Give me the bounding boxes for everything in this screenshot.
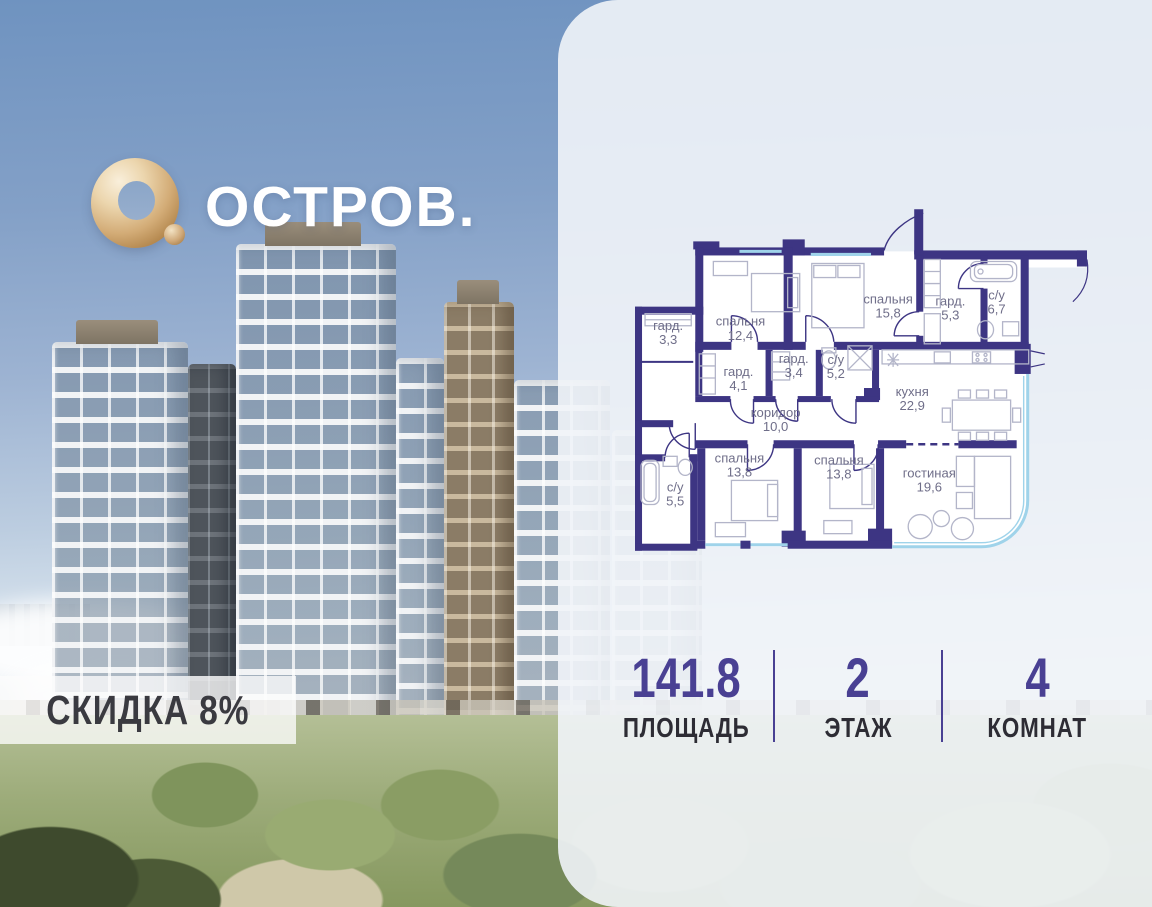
stat-area: 141.8 ПЛОЩАДЬ xyxy=(600,650,773,742)
room-area: 5,3 xyxy=(941,308,959,323)
room-area: 22,9 xyxy=(899,398,924,413)
room-area: 5,5 xyxy=(666,494,684,509)
stat-floor: 2 ЭТАЖ xyxy=(775,650,941,742)
floorplan: гард. 3,3 спальня 12,4 спальня 15,8 гард… xyxy=(635,203,1097,563)
room-label: гостиная xyxy=(903,465,956,480)
room-area: 4,1 xyxy=(729,378,747,393)
room-area: 12,4 xyxy=(728,328,753,343)
stat-rooms: 4 КОМНАТ xyxy=(943,650,1132,742)
room-area: 6,7 xyxy=(987,302,1005,317)
room-label: с/у xyxy=(988,288,1005,303)
discount-badge: СКИДКА 8% xyxy=(0,676,296,744)
stat-floor-value: 2 xyxy=(846,650,870,706)
promo-card: ОСТРОВ. СКИДКА 8% xyxy=(0,0,1152,907)
room-area: 13,8 xyxy=(826,466,851,481)
brand-name: ОСТРОВ. xyxy=(205,179,477,236)
discount-label: СКИДКА 8% xyxy=(46,687,249,734)
room-label: спальня xyxy=(863,292,913,307)
room-area: 19,6 xyxy=(917,479,942,494)
room-label: с/у xyxy=(667,479,684,494)
stat-floor-label: ЭТАЖ xyxy=(824,714,892,742)
room-label: спальня xyxy=(814,452,864,467)
room-area: 10,0 xyxy=(763,419,788,434)
room-label: коридор xyxy=(751,405,801,420)
room-label: гард. xyxy=(723,364,753,379)
room-label: гард. xyxy=(779,351,809,366)
room-area: 5,2 xyxy=(827,366,845,381)
room-label: гард. xyxy=(653,318,683,333)
room-label: кухня xyxy=(896,384,929,399)
room-area: 3,4 xyxy=(785,365,803,380)
room-label: гард. xyxy=(935,294,965,309)
brand-dot-icon xyxy=(164,224,185,245)
room-label: с/у xyxy=(828,352,845,367)
apartment-stats: 141.8 ПЛОЩАДЬ 2 ЭТАЖ 4 КОМНАТ xyxy=(600,642,1132,750)
room-label: спальня xyxy=(716,314,766,329)
stat-rooms-value: 4 xyxy=(1025,650,1049,706)
room-area: 3,3 xyxy=(659,332,677,347)
room-area: 15,8 xyxy=(875,306,900,321)
stat-area-value: 141.8 xyxy=(632,650,741,706)
room-area: 13,8 xyxy=(727,464,752,479)
stat-area-label: ПЛОЩАДЬ xyxy=(623,714,750,742)
room-label: спальня xyxy=(715,450,765,465)
stat-rooms-label: КОМНАТ xyxy=(988,714,1087,742)
